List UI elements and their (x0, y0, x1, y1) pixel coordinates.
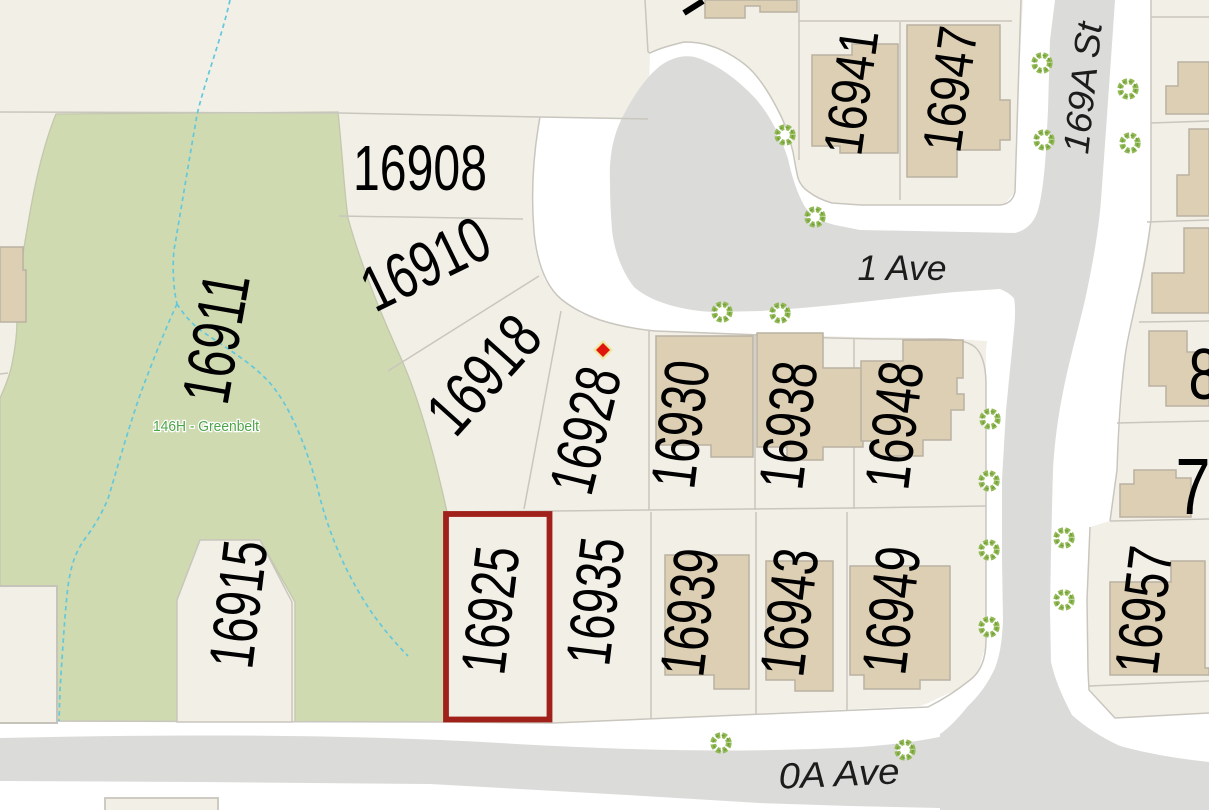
svg-text:8: 8 (1189, 335, 1209, 415)
svg-text:0A Ave: 0A Ave (778, 750, 901, 796)
svg-text:1 Ave: 1 Ave (858, 249, 947, 288)
svg-text:7: 7 (1176, 442, 1209, 531)
svg-text:146H - Greenbelt: 146H - Greenbelt (153, 418, 260, 435)
svg-text:16908: 16908 (353, 132, 487, 204)
